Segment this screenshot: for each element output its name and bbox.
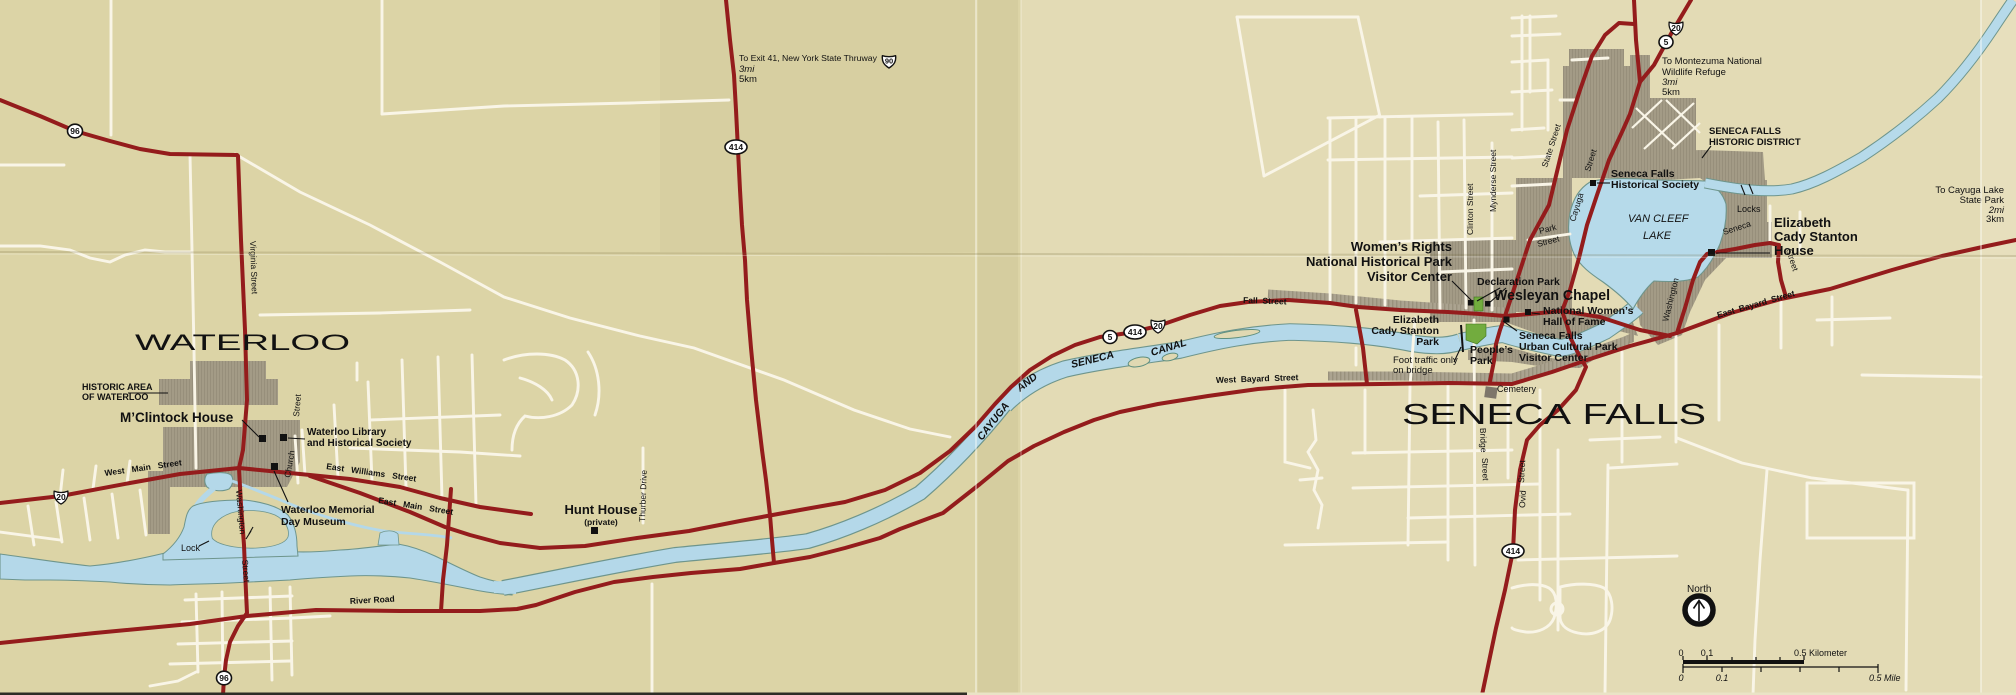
svg-text:VAN CLEEF: VAN CLEEF — [1628, 213, 1690, 225]
svg-text:Women’s Rights: Women’s Rights — [1351, 239, 1452, 254]
svg-text:LAKE: LAKE — [1643, 230, 1672, 242]
svg-text:and Historical Society: and Historical Society — [307, 438, 412, 449]
svg-text:SENECA FALLS: SENECA FALLS — [1402, 399, 1706, 431]
svg-text:Park: Park — [1416, 336, 1439, 348]
svg-text:Hunt House: Hunt House — [565, 502, 638, 517]
svg-text:(private): (private) — [584, 517, 618, 527]
svg-text:Ovid: Ovid — [1517, 490, 1528, 508]
svg-text:SENECA FALLS: SENECA FALLS — [1709, 126, 1781, 137]
svg-text:Hall of Fame: Hall of Fame — [1543, 316, 1606, 328]
svg-text:0.5 Mile: 0.5 Mile — [1869, 673, 1901, 683]
svg-text:96: 96 — [219, 673, 229, 683]
svg-text:Visitor Center: Visitor Center — [1519, 352, 1588, 364]
svg-text:Street: Street — [291, 393, 303, 417]
svg-text:Waterloo Memorial: Waterloo Memorial — [281, 504, 375, 516]
svg-text:Thurber Drive: Thurber Drive — [637, 470, 649, 523]
svg-text:Park: Park — [1470, 355, 1493, 367]
svg-text:0.5 Kilometer: 0.5 Kilometer — [1794, 648, 1847, 658]
svg-text:Lock: Lock — [181, 543, 201, 553]
svg-text:20: 20 — [1153, 321, 1163, 331]
svg-text:5km: 5km — [1662, 87, 1680, 98]
svg-text:Street: Street — [1480, 458, 1491, 482]
svg-text:Waterloo Library: Waterloo Library — [307, 427, 387, 438]
svg-text:5: 5 — [1108, 332, 1113, 342]
svg-text:To Montezuma National: To Montezuma National — [1662, 56, 1762, 67]
svg-text:5: 5 — [1664, 37, 1669, 47]
svg-text:Visitor Center: Visitor Center — [1367, 269, 1452, 284]
svg-text:Virginia Street: Virginia Street — [248, 241, 260, 295]
svg-text:Fall Street: Fall Street — [1243, 295, 1287, 307]
svg-text:To Exit 41, New York State Thr: To Exit 41, New York State Thruway — [739, 53, 878, 63]
svg-text:Wesleyan Chapel: Wesleyan Chapel — [1494, 287, 1610, 304]
svg-text:HISTORIC AREA: HISTORIC AREA — [82, 382, 153, 392]
svg-text:WATERLOO: WATERLOO — [135, 330, 350, 355]
svg-text:OF WATERLOO: OF WATERLOO — [82, 392, 148, 402]
svg-text:Locks: Locks — [1737, 204, 1761, 214]
svg-text:0: 0 — [1678, 673, 1683, 683]
svg-text:M’Clintock House: M’Clintock House — [120, 410, 234, 425]
svg-text:414: 414 — [1506, 546, 1520, 556]
svg-text:414: 414 — [729, 142, 743, 152]
svg-text:90: 90 — [885, 57, 893, 66]
svg-text:Street: Street — [1516, 459, 1527, 483]
svg-text:0.1: 0.1 — [1716, 673, 1729, 683]
svg-text:5km: 5km — [739, 74, 757, 85]
svg-text:96: 96 — [70, 126, 80, 136]
svg-text:3km: 3km — [1986, 214, 2004, 225]
svg-text:Cemetery: Cemetery — [1497, 384, 1537, 394]
svg-text:Cady Stanton: Cady Stanton — [1774, 229, 1858, 244]
svg-text:Clinton Street: Clinton Street — [1465, 183, 1475, 235]
svg-text:20: 20 — [56, 492, 66, 502]
svg-text:Bridge: Bridge — [1478, 428, 1489, 453]
svg-text:Mynderse Street: Mynderse Street — [1488, 149, 1498, 212]
svg-text:Street: Street — [240, 559, 252, 583]
svg-text:Historical Society: Historical Society — [1611, 179, 1699, 191]
svg-text:on bridge: on bridge — [1393, 365, 1433, 376]
svg-text:414: 414 — [1128, 327, 1142, 337]
svg-text:HISTORIC DISTRICT: HISTORIC DISTRICT — [1709, 137, 1801, 148]
svg-text:Declaration Park: Declaration Park — [1477, 276, 1560, 288]
svg-text:Day Museum: Day Museum — [281, 516, 346, 528]
svg-text:20: 20 — [1671, 23, 1681, 33]
svg-text:Elizabeth: Elizabeth — [1774, 215, 1831, 230]
